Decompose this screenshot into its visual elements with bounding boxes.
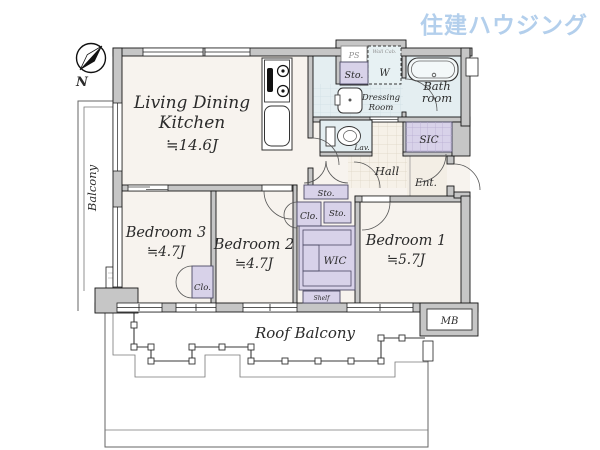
bedroom3-label: Bedroom 3 [125, 225, 207, 241]
pipe-space-label: PS [348, 51, 360, 60]
pipe-space-box: PS [341, 46, 367, 62]
wall-cabinet-label: Wall Cab. [372, 49, 396, 55]
storage-top-label: Sto. [345, 70, 364, 81]
ldk-label-line1: Living Dining [133, 93, 250, 113]
closet-bedroom3-label: Clo. [194, 283, 211, 293]
balcony-label: Balcony [85, 164, 99, 212]
bedroom2-label: Bedroom 2 [213, 237, 295, 253]
meter-box: MB [427, 309, 472, 330]
shelf-label: Shelf [314, 295, 331, 302]
kitchen-sink-icon [265, 106, 290, 146]
bathtub-icon [408, 58, 458, 81]
bedroom1-label: Bedroom 1 [365, 233, 447, 249]
compass-north-label: N [75, 75, 89, 90]
entrance-label: Ent. [414, 177, 437, 189]
ldk-size: ≒14.6J [166, 136, 219, 154]
roof-balcony: Roof Balcony [105, 312, 433, 447]
bathroom-label-line2: room [422, 91, 452, 105]
floor-plan-page: Roof Balcony Balcony [0, 0, 600, 450]
wall-right-lower [461, 196, 470, 312]
storage-mid2-label: Sto. [329, 209, 346, 219]
washbasin-icon [335, 88, 362, 113]
compass: N [75, 44, 105, 91]
meter-box-label: MB [440, 316, 459, 327]
roof-balcony-side-step [423, 341, 433, 361]
bedroom1-size: ≒5.7J [387, 252, 427, 268]
entrance-floor [407, 156, 447, 196]
closet-bedroom3 [192, 266, 213, 298]
dressing-label-line2: Room [368, 103, 394, 113]
exterior-service-box [466, 58, 478, 76]
bedroom3-size: ≒4.7J [147, 244, 187, 260]
washer-box: Wall Cab. W [368, 46, 401, 84]
wic-label: WIC [324, 255, 347, 267]
floor-plan-canvas: Roof Balcony Balcony [0, 0, 600, 450]
closet-mid-label: Clo. [300, 212, 318, 222]
storage-mid-label: Sto. [318, 189, 335, 199]
sic-label: SIC [419, 134, 438, 146]
walk-in-closet: WIC [299, 226, 355, 290]
stove-icon [265, 60, 290, 102]
lavatory-label: Lav. [353, 143, 369, 152]
ldk-label-line2: Kitchen [158, 113, 225, 133]
dressing-label-line1: Dressing [361, 93, 401, 103]
bedroom2-size: ≒4.7J [235, 256, 275, 272]
roof-balcony-label: Roof Balcony [254, 324, 356, 342]
company-logo: 住建ハウジング [420, 12, 588, 39]
hall-label: Hall [374, 164, 400, 178]
washer-label: W [379, 68, 390, 79]
